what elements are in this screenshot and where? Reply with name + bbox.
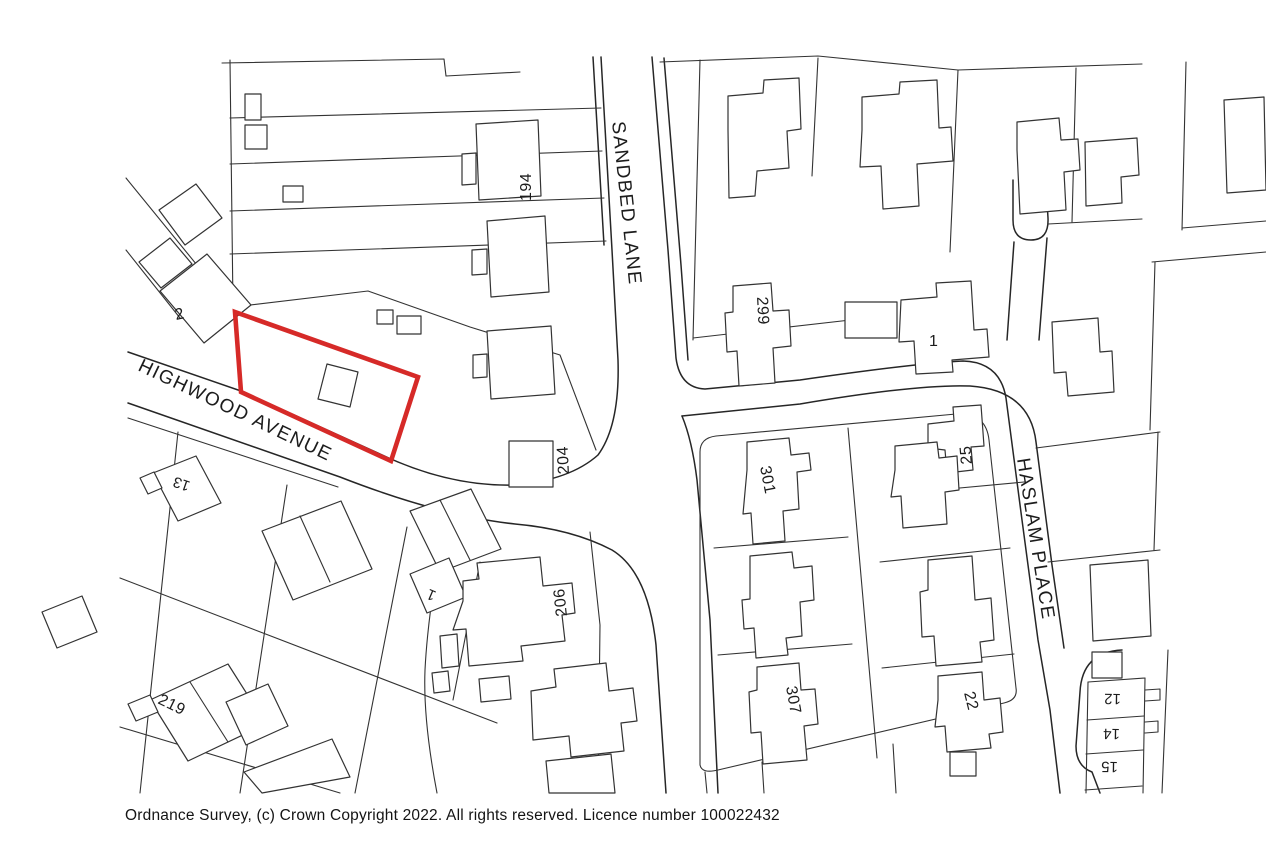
house-number-14: 14 [1103, 725, 1120, 742]
copyright-notice: Ordnance Survey, (c) Crown Copyright 202… [125, 807, 780, 824]
building-204 [509, 441, 553, 487]
house-number-204: 204 [555, 446, 573, 475]
os-map-extract: SANDBED LANE HIGHWOOD AVENUE HASLAM PLAC… [0, 0, 1266, 863]
highlighted-site [235, 312, 418, 461]
map-canvas: SANDBED LANE HIGHWOOD AVENUE HASLAM PLAC… [0, 0, 1266, 863]
site-building [318, 364, 358, 407]
house-number-15: 15 [1101, 758, 1118, 775]
house-number-1-east: 1 [929, 333, 938, 350]
road-eastwest-south-haslam-east [682, 386, 1064, 648]
road-haslam-upper-west [1007, 242, 1014, 340]
buildings [42, 78, 1266, 793]
building-22 [935, 672, 1003, 752]
street-label-highwood-avenue: HIGHWOOD AVENUE [135, 356, 336, 466]
house-number-25: 25 [957, 445, 976, 465]
house-number-206: 206 [551, 588, 571, 618]
road-haslam-upper-east [1039, 238, 1047, 340]
house-number-299: 299 [753, 296, 771, 325]
street-label-haslam-place: HASLAM PLACE [1012, 456, 1058, 621]
house-number-194: 194 [518, 173, 535, 201]
building-1-south [410, 558, 466, 613]
road-sandbed-verge-east [664, 58, 688, 360]
building-1-east [899, 281, 989, 374]
house-number-12: 12 [1104, 690, 1121, 707]
